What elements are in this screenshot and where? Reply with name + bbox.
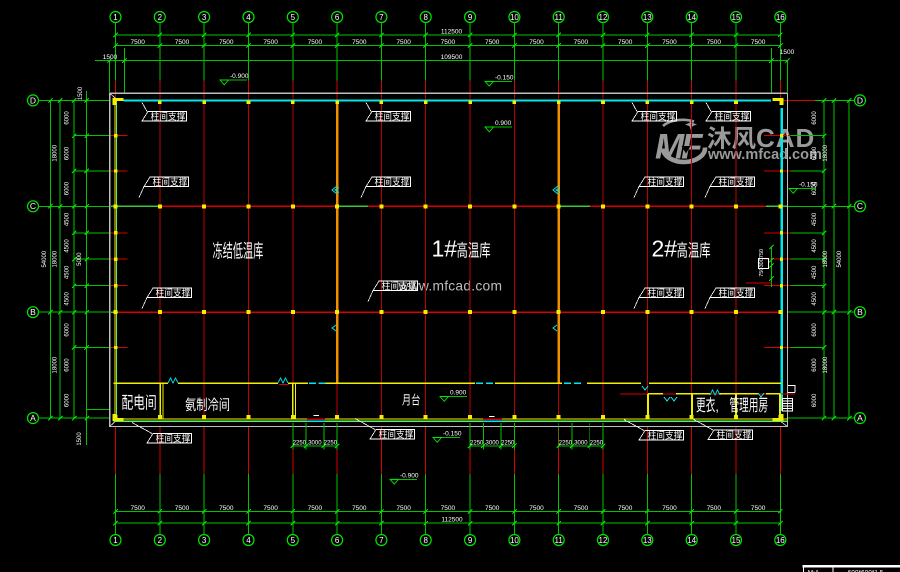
svg-text:1500: 1500 xyxy=(103,54,118,61)
svg-text:5: 5 xyxy=(291,536,296,545)
svg-text:750: 750 xyxy=(759,268,765,277)
svg-text:7500: 7500 xyxy=(485,39,500,46)
svg-text:1500: 1500 xyxy=(780,49,795,56)
svg-text:54000: 54000 xyxy=(42,250,48,267)
svg-text:7500: 7500 xyxy=(618,39,633,46)
svg-text:112500: 112500 xyxy=(441,29,463,36)
svg-text:-0.900: -0.900 xyxy=(230,73,249,80)
svg-text:3000: 3000 xyxy=(574,440,588,446)
svg-text:7500: 7500 xyxy=(751,505,766,512)
svg-text:18000: 18000 xyxy=(53,356,59,373)
svg-text:4500: 4500 xyxy=(812,292,818,306)
svg-text:-0.150: -0.150 xyxy=(443,431,462,438)
svg-text:D: D xyxy=(857,95,863,105)
svg-text:1#: 1# xyxy=(432,236,458,262)
svg-text:4500: 4500 xyxy=(65,239,71,253)
svg-text:B: B xyxy=(30,307,36,317)
svg-text:7500: 7500 xyxy=(396,39,411,46)
svg-text:112500: 112500 xyxy=(441,517,463,524)
svg-text:7500: 7500 xyxy=(352,39,367,46)
svg-text:6000: 6000 xyxy=(65,323,71,337)
svg-text:3: 3 xyxy=(202,13,207,22)
svg-text:9: 9 xyxy=(468,536,473,545)
svg-text:7500: 7500 xyxy=(308,505,323,512)
svg-text:5: 5 xyxy=(291,13,296,22)
svg-text:4500: 4500 xyxy=(812,239,818,253)
svg-text:18000: 18000 xyxy=(53,250,59,267)
svg-text:18000: 18000 xyxy=(53,144,59,161)
svg-text:7500: 7500 xyxy=(707,505,722,512)
svg-text:C: C xyxy=(857,201,863,211)
svg-text:2250: 2250 xyxy=(293,440,307,446)
svg-text:A: A xyxy=(30,413,36,423)
svg-text:10: 10 xyxy=(510,536,519,545)
svg-text:5000: 5000 xyxy=(77,252,83,266)
svg-text:7500: 7500 xyxy=(263,39,278,46)
svg-text:7500: 7500 xyxy=(263,505,278,512)
svg-text:2#: 2# xyxy=(652,236,678,262)
svg-text:3000: 3000 xyxy=(308,440,322,446)
svg-text:B: B xyxy=(857,307,863,317)
svg-text:6000: 6000 xyxy=(812,393,818,407)
svg-text:7500: 7500 xyxy=(352,505,367,512)
svg-text:11: 11 xyxy=(555,536,564,545)
svg-text:18000: 18000 xyxy=(823,144,829,161)
svg-text:7500: 7500 xyxy=(662,505,677,512)
svg-text:7500: 7500 xyxy=(574,39,589,46)
svg-text:7500: 7500 xyxy=(485,505,500,512)
svg-text:12: 12 xyxy=(599,13,608,22)
svg-text:6: 6 xyxy=(335,13,340,22)
svg-text:300: 300 xyxy=(759,258,765,267)
svg-text:4500: 4500 xyxy=(812,265,818,279)
svg-text:7500: 7500 xyxy=(618,505,633,512)
svg-text:11: 11 xyxy=(555,13,564,22)
svg-text:7: 7 xyxy=(379,13,384,22)
svg-text:16: 16 xyxy=(776,13,785,22)
svg-text:6: 6 xyxy=(335,536,340,545)
svg-text:0.900: 0.900 xyxy=(450,390,467,397)
svg-text:6000: 6000 xyxy=(65,181,71,195)
svg-text:www.mfcad.com: www.mfcad.com xyxy=(707,147,822,163)
svg-text:15: 15 xyxy=(732,536,741,545)
svg-text:54000: 54000 xyxy=(837,250,843,267)
svg-text:7500: 7500 xyxy=(130,39,145,46)
svg-text:D: D xyxy=(30,95,36,105)
svg-text:18000: 18000 xyxy=(823,250,829,267)
svg-text:6000: 6000 xyxy=(812,111,818,125)
svg-text:7500: 7500 xyxy=(441,505,456,512)
svg-text:9: 9 xyxy=(468,13,473,22)
svg-text:15: 15 xyxy=(732,13,741,22)
svg-text:7500: 7500 xyxy=(130,505,145,512)
svg-text:3000: 3000 xyxy=(486,440,500,446)
svg-text:18000: 18000 xyxy=(823,356,829,373)
svg-text:8: 8 xyxy=(423,13,428,22)
svg-text:7500: 7500 xyxy=(529,39,544,46)
svg-text:16: 16 xyxy=(776,536,785,545)
svg-text:7500: 7500 xyxy=(396,505,411,512)
svg-text:2250: 2250 xyxy=(559,440,573,446)
svg-text:4: 4 xyxy=(246,536,251,545)
svg-text:2250: 2250 xyxy=(590,440,604,446)
svg-text:-0.150: -0.150 xyxy=(495,75,514,82)
svg-text:2: 2 xyxy=(158,13,163,22)
svg-text:7: 7 xyxy=(379,536,384,545)
svg-text:6000: 6000 xyxy=(812,323,818,337)
svg-text:8: 8 xyxy=(423,536,428,545)
svg-text:14: 14 xyxy=(687,536,696,545)
svg-text:750: 750 xyxy=(759,249,765,258)
svg-text:C: C xyxy=(30,201,36,211)
svg-text:7500: 7500 xyxy=(529,505,544,512)
svg-text:4500: 4500 xyxy=(812,212,818,226)
svg-text:7500: 7500 xyxy=(574,505,589,512)
svg-text:6000: 6000 xyxy=(65,358,71,372)
svg-text:7500: 7500 xyxy=(707,39,722,46)
svg-text:-0.150: -0.150 xyxy=(799,182,818,189)
svg-text:2250: 2250 xyxy=(324,440,338,446)
svg-text:2: 2 xyxy=(158,536,163,545)
svg-text:6000: 6000 xyxy=(65,111,71,125)
svg-text:14: 14 xyxy=(687,13,696,22)
svg-text:13: 13 xyxy=(643,13,652,22)
svg-text:7500: 7500 xyxy=(175,39,190,46)
svg-text:2250: 2250 xyxy=(470,440,484,446)
svg-text:7500: 7500 xyxy=(662,39,677,46)
svg-text:1500: 1500 xyxy=(77,432,83,446)
svg-text:A: A xyxy=(857,413,863,423)
svg-text:7500: 7500 xyxy=(308,39,323,46)
svg-text:,: , xyxy=(715,399,719,414)
svg-text:3: 3 xyxy=(202,536,207,545)
svg-text:1: 1 xyxy=(113,13,118,22)
svg-text:7500: 7500 xyxy=(219,505,234,512)
svg-text:7500: 7500 xyxy=(175,505,190,512)
svg-text:109500: 109500 xyxy=(441,54,463,61)
svg-text:6000: 6000 xyxy=(812,358,818,372)
svg-text:4: 4 xyxy=(246,13,251,22)
svg-text:4500: 4500 xyxy=(65,212,71,226)
svg-text:12: 12 xyxy=(599,536,608,545)
svg-text:1: 1 xyxy=(113,536,118,545)
svg-text:4500: 4500 xyxy=(65,292,71,306)
svg-text:0.900: 0.900 xyxy=(495,120,512,127)
svg-text:7500: 7500 xyxy=(219,39,234,46)
svg-text:2250: 2250 xyxy=(501,440,515,446)
svg-text:10: 10 xyxy=(510,13,519,22)
svg-text:-0.900: -0.900 xyxy=(400,473,419,480)
svg-text:4500: 4500 xyxy=(65,265,71,279)
svg-text:1500: 1500 xyxy=(78,86,84,100)
svg-text:6000: 6000 xyxy=(65,393,71,407)
svg-text:7500: 7500 xyxy=(441,39,456,46)
svg-text:13: 13 xyxy=(643,536,652,545)
svg-text:6000: 6000 xyxy=(812,146,818,160)
svg-text:6000: 6000 xyxy=(65,146,71,160)
svg-text:7500: 7500 xyxy=(751,39,766,46)
